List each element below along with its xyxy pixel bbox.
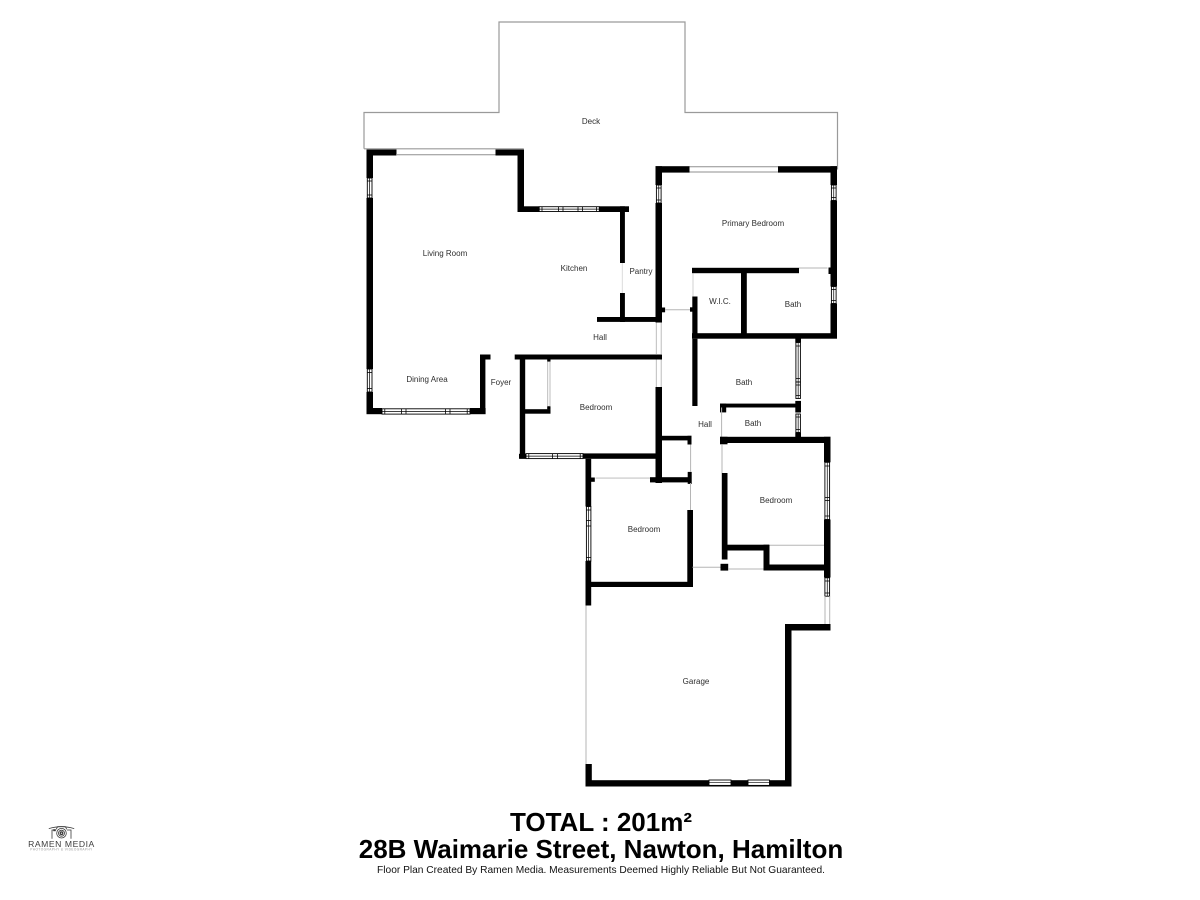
svg-text:Hall: Hall [593, 333, 607, 342]
svg-text:Floor Plan Created By Ramen Me: Floor Plan Created By Ramen Media. Measu… [377, 865, 825, 876]
svg-text:W.I.C.: W.I.C. [709, 297, 731, 306]
svg-text:Kitchen: Kitchen [561, 264, 588, 273]
svg-text:Garage: Garage [683, 677, 710, 686]
svg-text:TOTAL : 201m²: TOTAL : 201m² [510, 807, 692, 837]
svg-text:Pantry: Pantry [629, 267, 652, 276]
svg-text:Deck: Deck [582, 117, 601, 126]
svg-text:Foyer: Foyer [491, 378, 512, 387]
svg-text:Hall: Hall [698, 420, 712, 429]
svg-text:Primary Bedroom: Primary Bedroom [722, 219, 785, 228]
svg-text:28B Waimarie Street, Nawton, H: 28B Waimarie Street, Nawton, Hamilton [359, 834, 843, 864]
svg-text:Bath: Bath [745, 419, 761, 428]
svg-text:Dining Area: Dining Area [406, 375, 448, 384]
svg-text:Living Room: Living Room [423, 249, 468, 258]
svg-text:Bedroom: Bedroom [628, 525, 661, 534]
svg-text:Bedroom: Bedroom [760, 496, 793, 505]
svg-text:Bath: Bath [785, 300, 801, 309]
svg-text:Bedroom: Bedroom [580, 403, 613, 412]
svg-text:PHOTOGRAPHY & VIDEOGRAPHY: PHOTOGRAPHY & VIDEOGRAPHY [30, 848, 93, 852]
svg-text:Bath: Bath [736, 378, 752, 387]
